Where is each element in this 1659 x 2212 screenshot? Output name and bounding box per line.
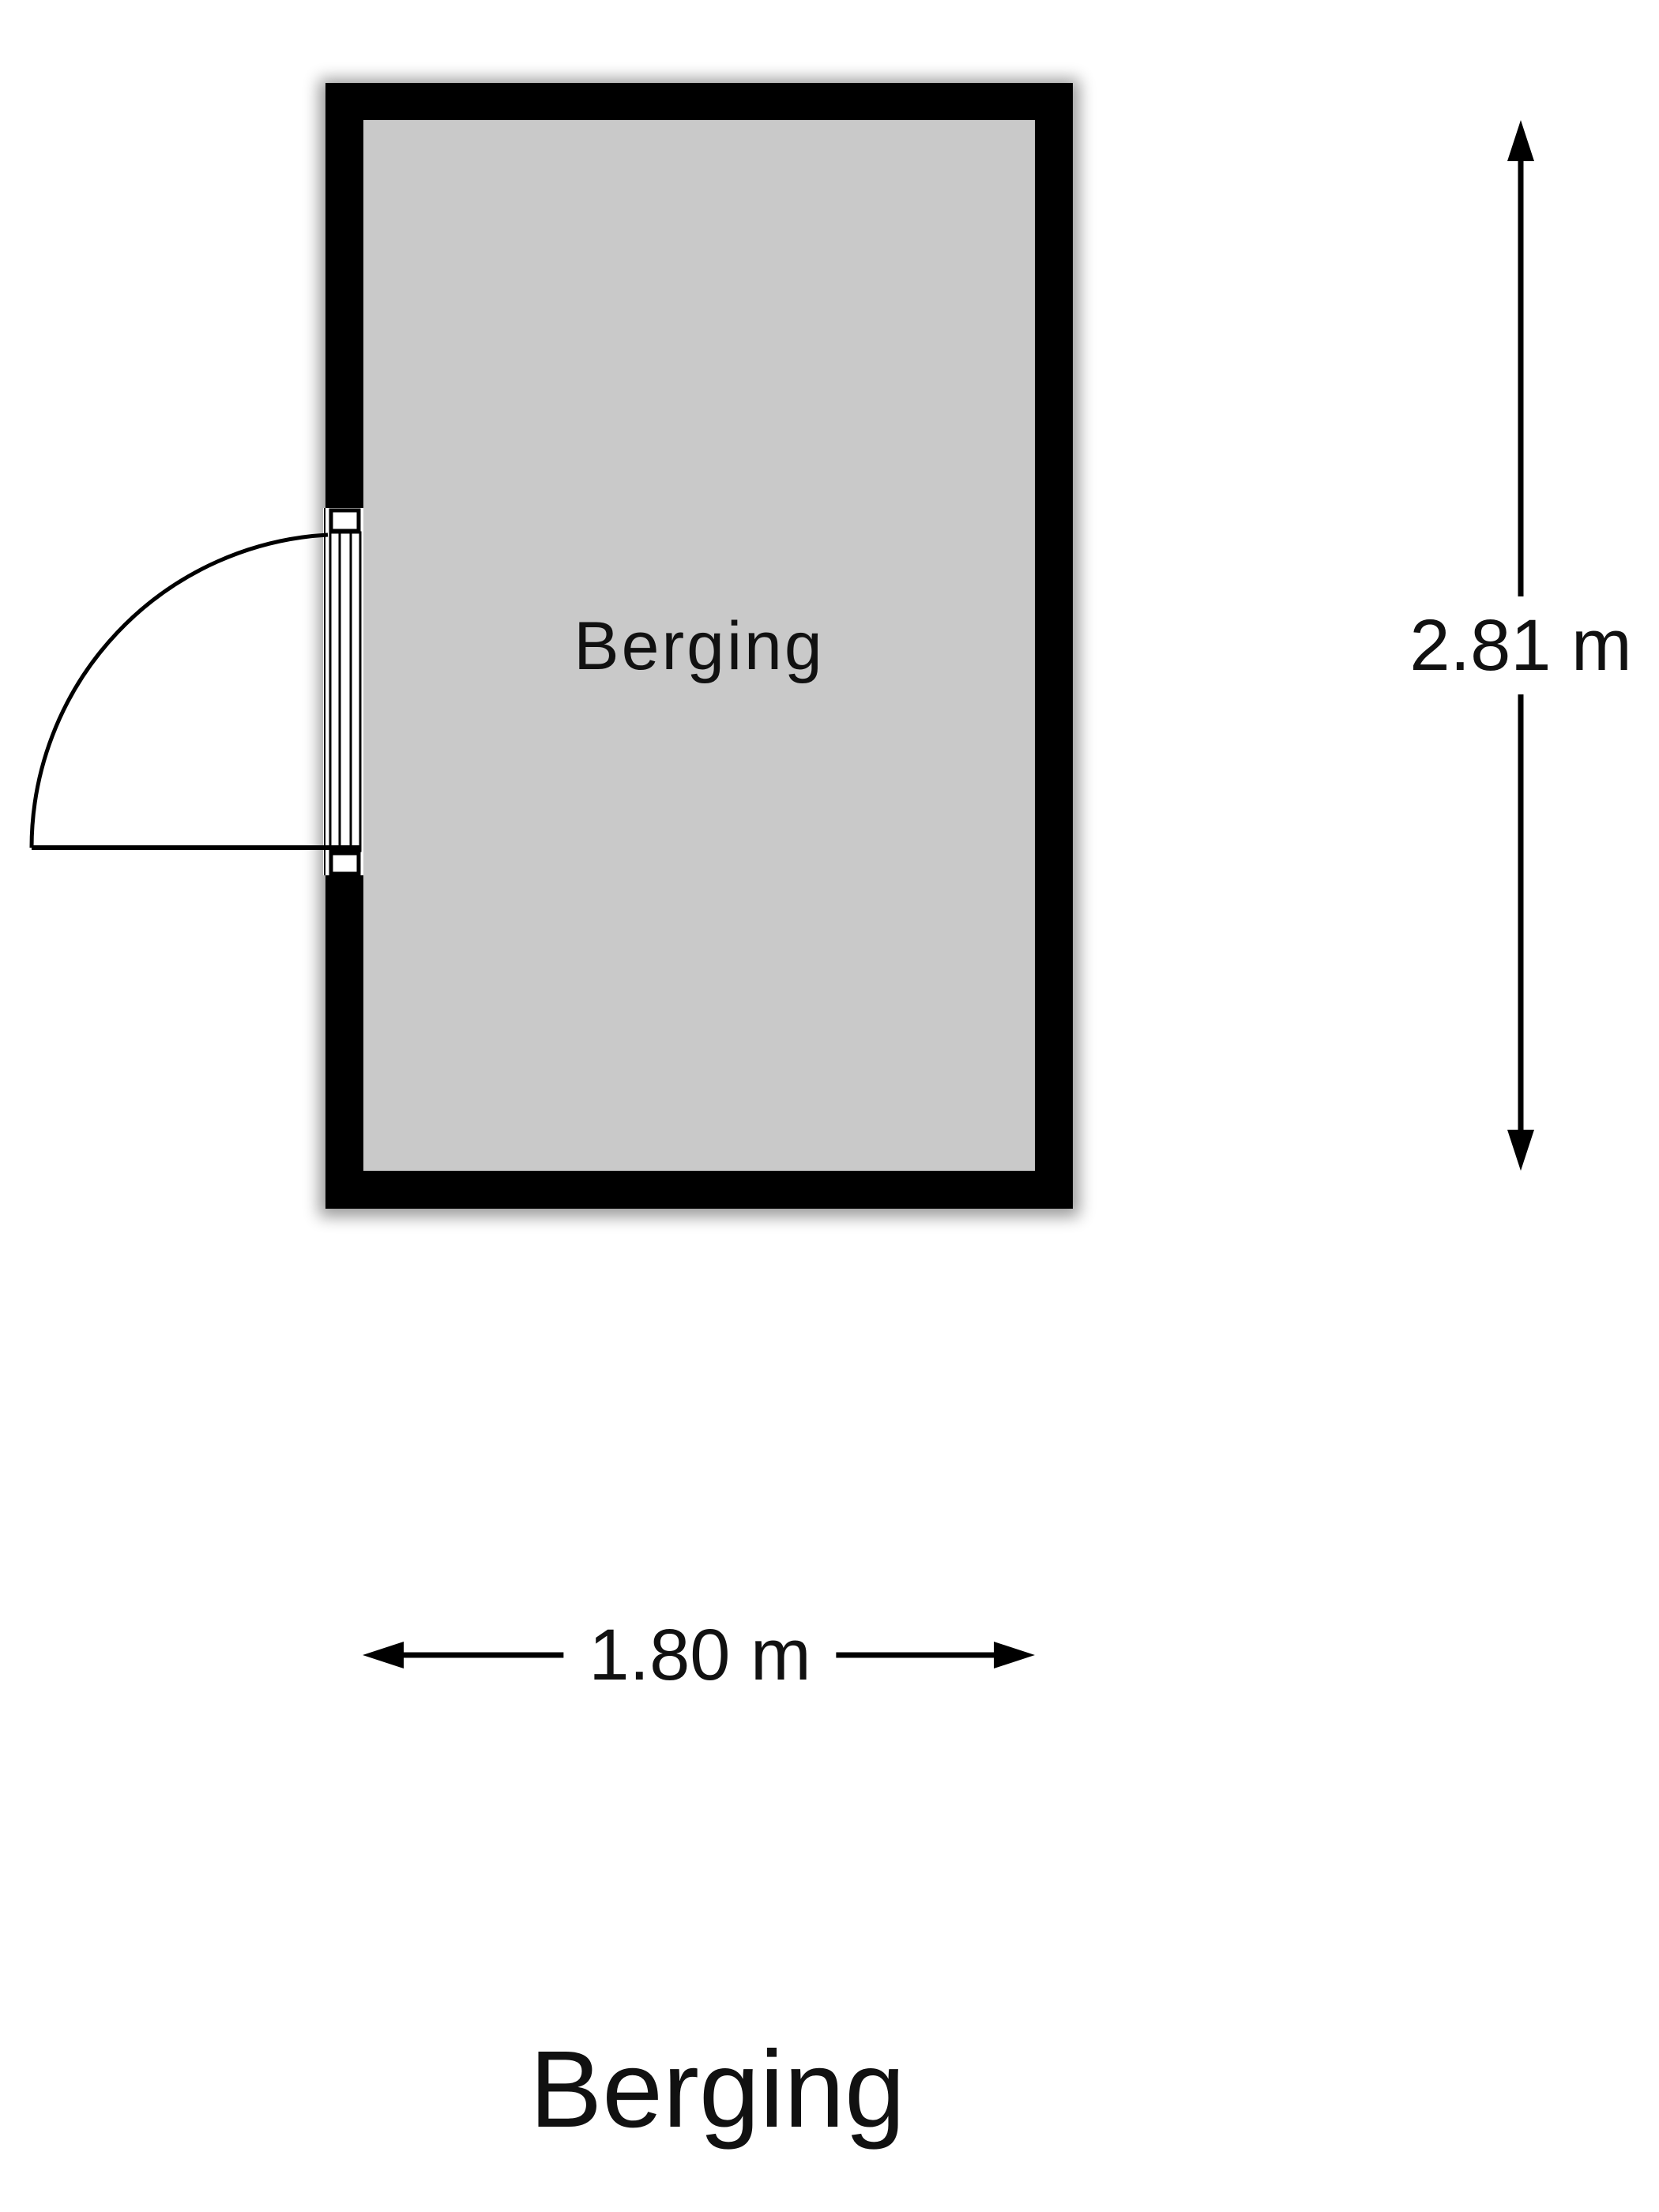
plan-title: Berging bbox=[529, 2035, 905, 2144]
room-name-label: Berging bbox=[574, 612, 824, 680]
height-arrowhead-down bbox=[1507, 1130, 1534, 1171]
door-jamb-bottom bbox=[331, 853, 359, 874]
door-swing-arc bbox=[32, 535, 328, 848]
width-dimension-label: 1.80 m bbox=[563, 1611, 836, 1699]
floorplan-page: Berging 2.81 m 1.80 m Berging bbox=[0, 0, 1659, 2212]
floorplan-drawing bbox=[0, 0, 1659, 2212]
height-arrowhead-up bbox=[1507, 120, 1534, 161]
height-dimension-label: 2.81 m bbox=[1394, 596, 1647, 694]
door-jamb-top bbox=[331, 510, 359, 531]
width-arrowhead-right bbox=[994, 1642, 1035, 1668]
door-panel bbox=[330, 532, 360, 851]
width-arrowhead-left bbox=[363, 1642, 404, 1668]
